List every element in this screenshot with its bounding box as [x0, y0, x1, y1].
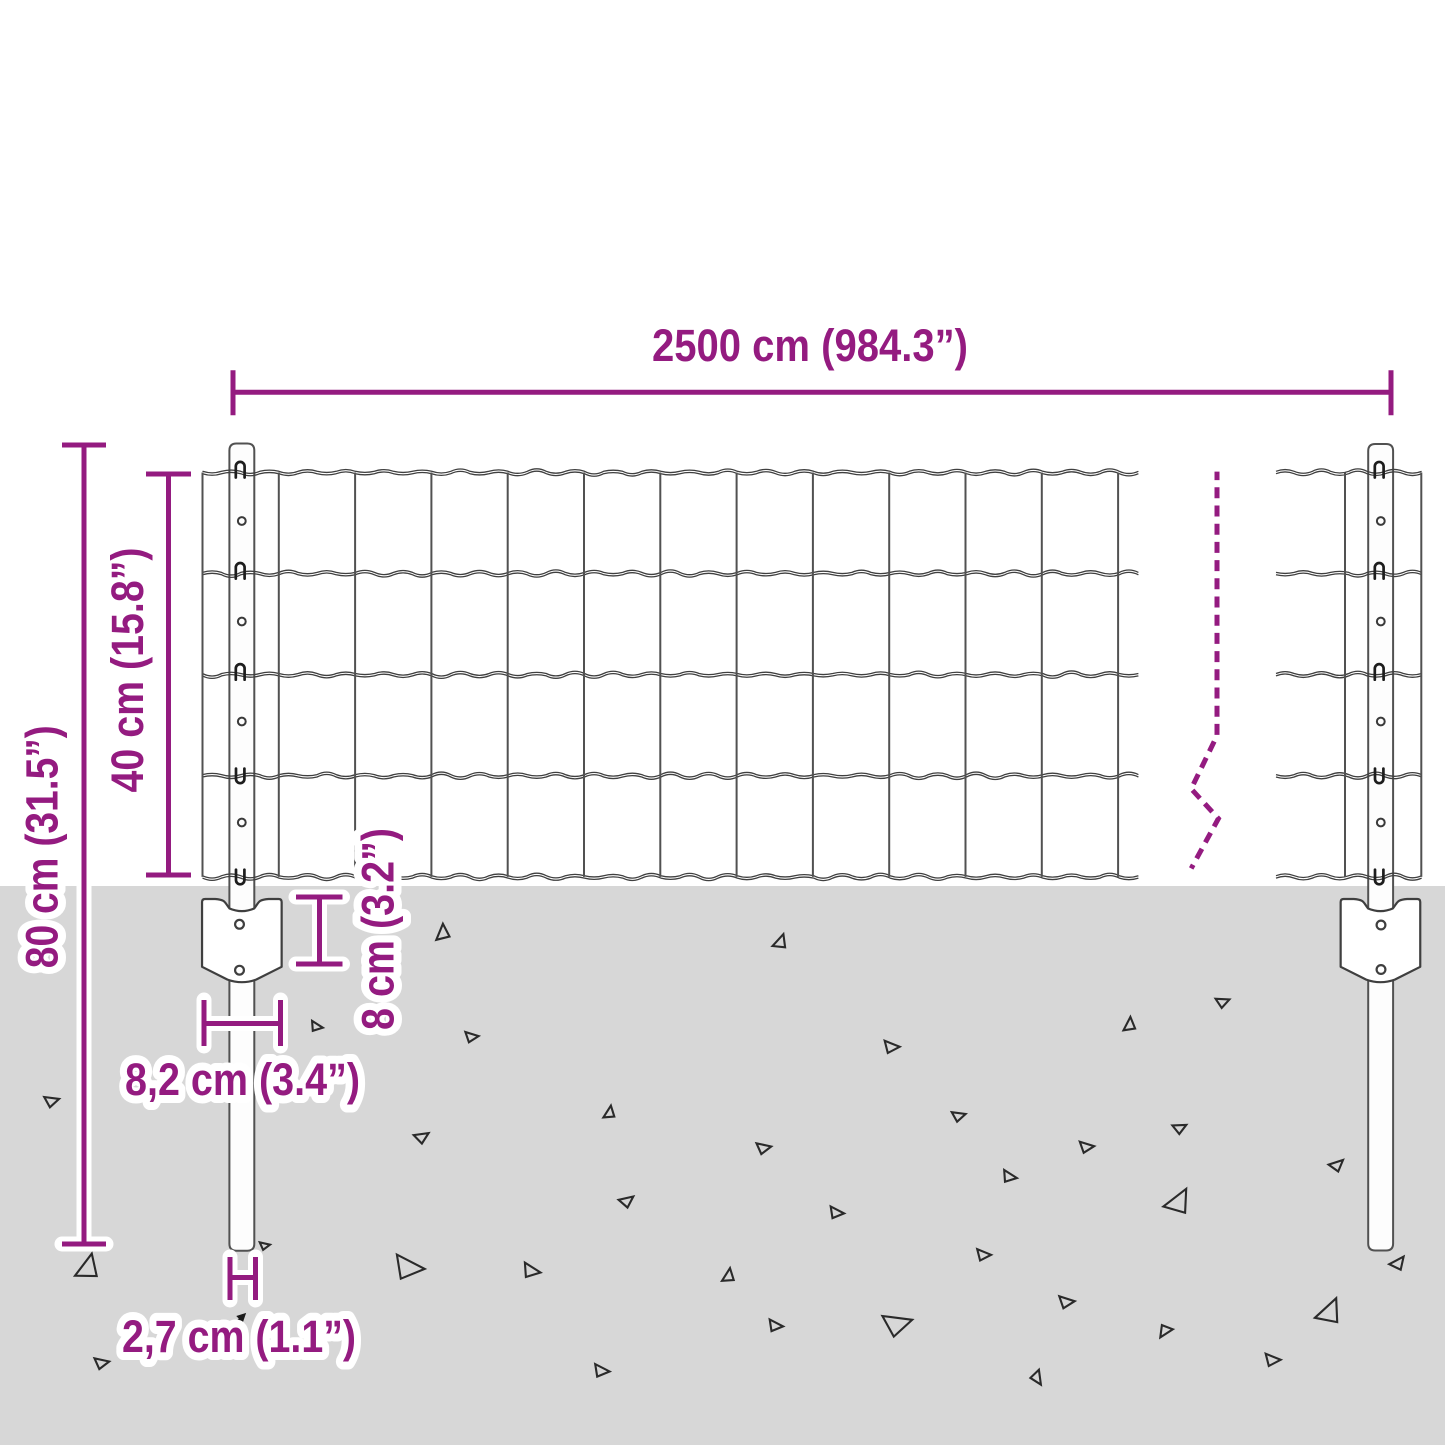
svg-text:80 cm (31.5”): 80 cm (31.5”): [17, 725, 68, 968]
svg-text:2500 cm (984.3”): 2500 cm (984.3”): [652, 320, 968, 371]
svg-text:8,2 cm (3.4”): 8,2 cm (3.4”): [125, 1054, 360, 1105]
svg-text:40 cm (15.8”): 40 cm (15.8”): [102, 548, 153, 793]
svg-text:2,7 cm (1.1”): 2,7 cm (1.1”): [122, 1311, 356, 1362]
svg-text:8 cm (3.2”): 8 cm (3.2”): [353, 828, 404, 1030]
